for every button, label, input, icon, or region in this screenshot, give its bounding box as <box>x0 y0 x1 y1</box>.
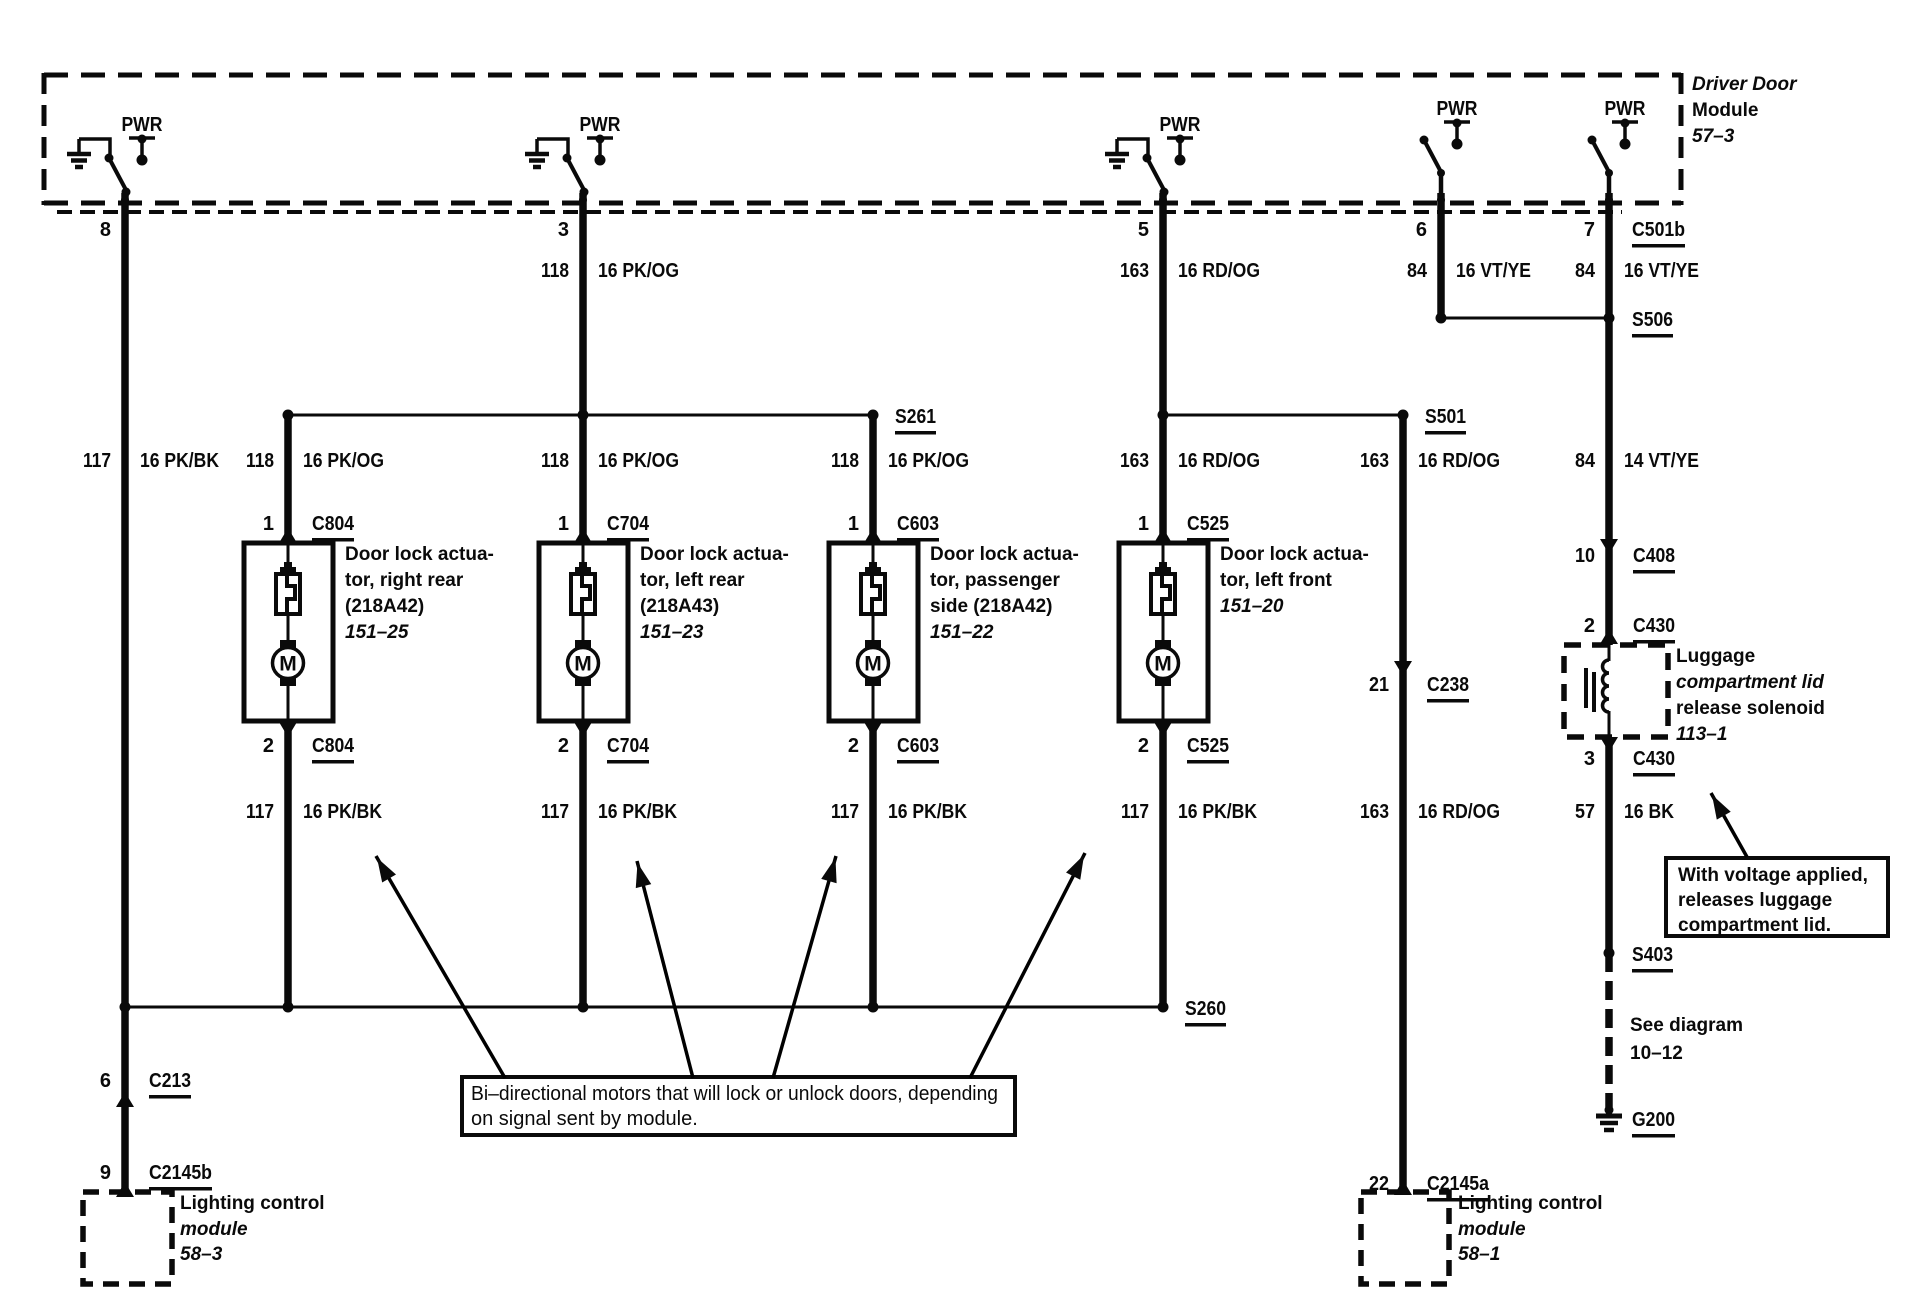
svg-text:C704: C704 <box>607 513 650 535</box>
svg-text:Bi–directional motors that wil: Bi–directional motors that will lock or … <box>471 1083 998 1105</box>
svg-text:3: 3 <box>1584 748 1595 770</box>
svg-text:6: 6 <box>1416 219 1427 241</box>
svg-text:(218A42): (218A42) <box>345 596 424 617</box>
svg-text:C430: C430 <box>1633 615 1675 637</box>
svg-text:C2145b: C2145b <box>149 1162 212 1184</box>
svg-text:84: 84 <box>1575 260 1596 282</box>
svg-text:118: 118 <box>541 450 569 472</box>
svg-text:tor, right rear: tor, right rear <box>345 570 464 591</box>
svg-text:3: 3 <box>558 219 569 241</box>
svg-text:16 PK/OG: 16 PK/OG <box>598 450 679 472</box>
svg-text:117: 117 <box>831 801 859 823</box>
svg-text:16 PK/OG: 16 PK/OG <box>303 450 384 472</box>
svg-text:C525: C525 <box>1187 513 1229 535</box>
svg-text:With voltage applied,: With voltage applied, <box>1678 865 1868 886</box>
svg-text:117: 117 <box>83 450 111 472</box>
svg-text:16 PK/OG: 16 PK/OG <box>888 450 969 472</box>
svg-text:C430: C430 <box>1633 748 1675 770</box>
svg-text:6: 6 <box>100 1070 111 1092</box>
svg-text:16 VT/YE: 16 VT/YE <box>1624 260 1699 282</box>
svg-text:S403: S403 <box>1632 944 1673 966</box>
svg-text:163: 163 <box>1360 801 1389 823</box>
svg-text:Driver Door: Driver Door <box>1692 74 1798 95</box>
svg-text:163: 163 <box>1360 450 1389 472</box>
svg-text:Door lock actua-: Door lock actua- <box>1220 544 1369 565</box>
svg-text:151–22: 151–22 <box>930 622 994 643</box>
svg-text:117: 117 <box>541 801 569 823</box>
svg-text:16 PK/BK: 16 PK/BK <box>1178 801 1257 823</box>
svg-text:C501b: C501b <box>1632 219 1685 241</box>
svg-text:compartment lid: compartment lid <box>1676 672 1824 693</box>
svg-text:151–23: 151–23 <box>640 622 704 643</box>
svg-text:58–3: 58–3 <box>180 1244 223 1265</box>
svg-text:C804: C804 <box>312 735 355 757</box>
svg-text:Luggage: Luggage <box>1676 646 1755 667</box>
svg-text:2: 2 <box>263 735 274 757</box>
svg-text:118: 118 <box>541 260 569 282</box>
svg-text:14 VT/YE: 14 VT/YE <box>1624 450 1699 472</box>
svg-text:S501: S501 <box>1425 406 1466 428</box>
svg-text:(218A43): (218A43) <box>640 596 719 617</box>
svg-text:16 PK/BK: 16 PK/BK <box>303 801 382 823</box>
svg-text:tor, left rear: tor, left rear <box>640 570 745 591</box>
svg-text:compartment lid.: compartment lid. <box>1678 915 1831 936</box>
svg-text:16 PK/BK: 16 PK/BK <box>598 801 677 823</box>
svg-text:PWR: PWR <box>121 114 162 136</box>
svg-text:Door lock actua-: Door lock actua- <box>345 544 494 565</box>
svg-text:118: 118 <box>246 450 274 472</box>
svg-text:113–1: 113–1 <box>1676 724 1727 745</box>
svg-text:2: 2 <box>558 735 569 757</box>
svg-text:PWR: PWR <box>579 114 620 136</box>
svg-text:tor, left front: tor, left front <box>1220 570 1333 591</box>
svg-text:C2145a: C2145a <box>1427 1173 1490 1195</box>
svg-text:16 RD/OG: 16 RD/OG <box>1418 450 1500 472</box>
svg-text:16 VT/YE: 16 VT/YE <box>1456 260 1531 282</box>
svg-text:16 RD/OG: 16 RD/OG <box>1178 260 1260 282</box>
svg-text:2: 2 <box>1584 615 1595 637</box>
svg-text:on signal sent by module.: on signal sent by module. <box>471 1108 698 1130</box>
svg-text:151–20: 151–20 <box>1220 596 1284 617</box>
svg-text:8: 8 <box>100 219 111 241</box>
svg-text:21: 21 <box>1369 674 1389 696</box>
svg-text:C213: C213 <box>149 1070 191 1092</box>
svg-text:module: module <box>1458 1219 1526 1240</box>
svg-text:16 PK/OG: 16 PK/OG <box>598 260 679 282</box>
svg-text:117: 117 <box>246 801 274 823</box>
svg-text:118: 118 <box>831 450 859 472</box>
svg-text:See diagram: See diagram <box>1630 1015 1743 1036</box>
svg-text:10–12: 10–12 <box>1630 1043 1683 1064</box>
svg-text:16 RD/OG: 16 RD/OG <box>1418 801 1500 823</box>
svg-text:2: 2 <box>1138 735 1149 757</box>
svg-text:C704: C704 <box>607 735 650 757</box>
svg-text:57: 57 <box>1575 801 1595 823</box>
svg-text:C238: C238 <box>1427 674 1469 696</box>
svg-text:9: 9 <box>100 1162 111 1184</box>
svg-text:Door lock actua-: Door lock actua- <box>640 544 789 565</box>
svg-text:163: 163 <box>1120 450 1149 472</box>
svg-text:163: 163 <box>1120 260 1149 282</box>
svg-text:module: module <box>180 1219 248 1240</box>
svg-text:PWR: PWR <box>1436 98 1477 120</box>
svg-text:16 RD/OG: 16 RD/OG <box>1178 450 1260 472</box>
svg-text:1: 1 <box>848 513 859 535</box>
svg-text:1: 1 <box>263 513 274 535</box>
svg-text:release solenoid: release solenoid <box>1676 698 1825 719</box>
svg-text:tor, passenger: tor, passenger <box>930 570 1060 591</box>
svg-text:151–25: 151–25 <box>345 622 409 643</box>
svg-text:84: 84 <box>1407 260 1428 282</box>
svg-text:releases luggage: releases luggage <box>1678 890 1832 911</box>
svg-text:16 PK/BK: 16 PK/BK <box>140 450 219 472</box>
svg-text:C603: C603 <box>897 735 939 757</box>
svg-text:1: 1 <box>1138 513 1149 535</box>
svg-text:1: 1 <box>558 513 569 535</box>
svg-text:117: 117 <box>1121 801 1149 823</box>
svg-text:84: 84 <box>1575 450 1596 472</box>
svg-text:S506: S506 <box>1632 309 1673 331</box>
svg-text:PWR: PWR <box>1159 114 1200 136</box>
svg-text:C408: C408 <box>1633 545 1675 567</box>
svg-text:side (218A42): side (218A42) <box>930 596 1053 617</box>
svg-text:5: 5 <box>1138 219 1149 241</box>
svg-text:C804: C804 <box>312 513 355 535</box>
svg-text:Lighting control: Lighting control <box>1458 1193 1603 1214</box>
svg-text:S261: S261 <box>895 406 936 428</box>
svg-text:S260: S260 <box>1185 998 1226 1020</box>
svg-text:7: 7 <box>1584 219 1595 241</box>
svg-text:Module: Module <box>1692 100 1759 121</box>
svg-text:10: 10 <box>1575 545 1595 567</box>
svg-text:Door lock actua-: Door lock actua- <box>930 544 1079 565</box>
svg-text:PWR: PWR <box>1604 98 1645 120</box>
svg-text:2: 2 <box>848 735 859 757</box>
svg-text:57–3: 57–3 <box>1692 126 1735 147</box>
svg-text:16 PK/BK: 16 PK/BK <box>888 801 967 823</box>
svg-text:16 BK: 16 BK <box>1624 801 1674 823</box>
svg-text:Lighting control: Lighting control <box>180 1193 325 1214</box>
svg-text:58–1: 58–1 <box>1458 1244 1500 1265</box>
svg-text:C603: C603 <box>897 513 939 535</box>
svg-text:G200: G200 <box>1632 1109 1675 1131</box>
svg-text:C525: C525 <box>1187 735 1229 757</box>
